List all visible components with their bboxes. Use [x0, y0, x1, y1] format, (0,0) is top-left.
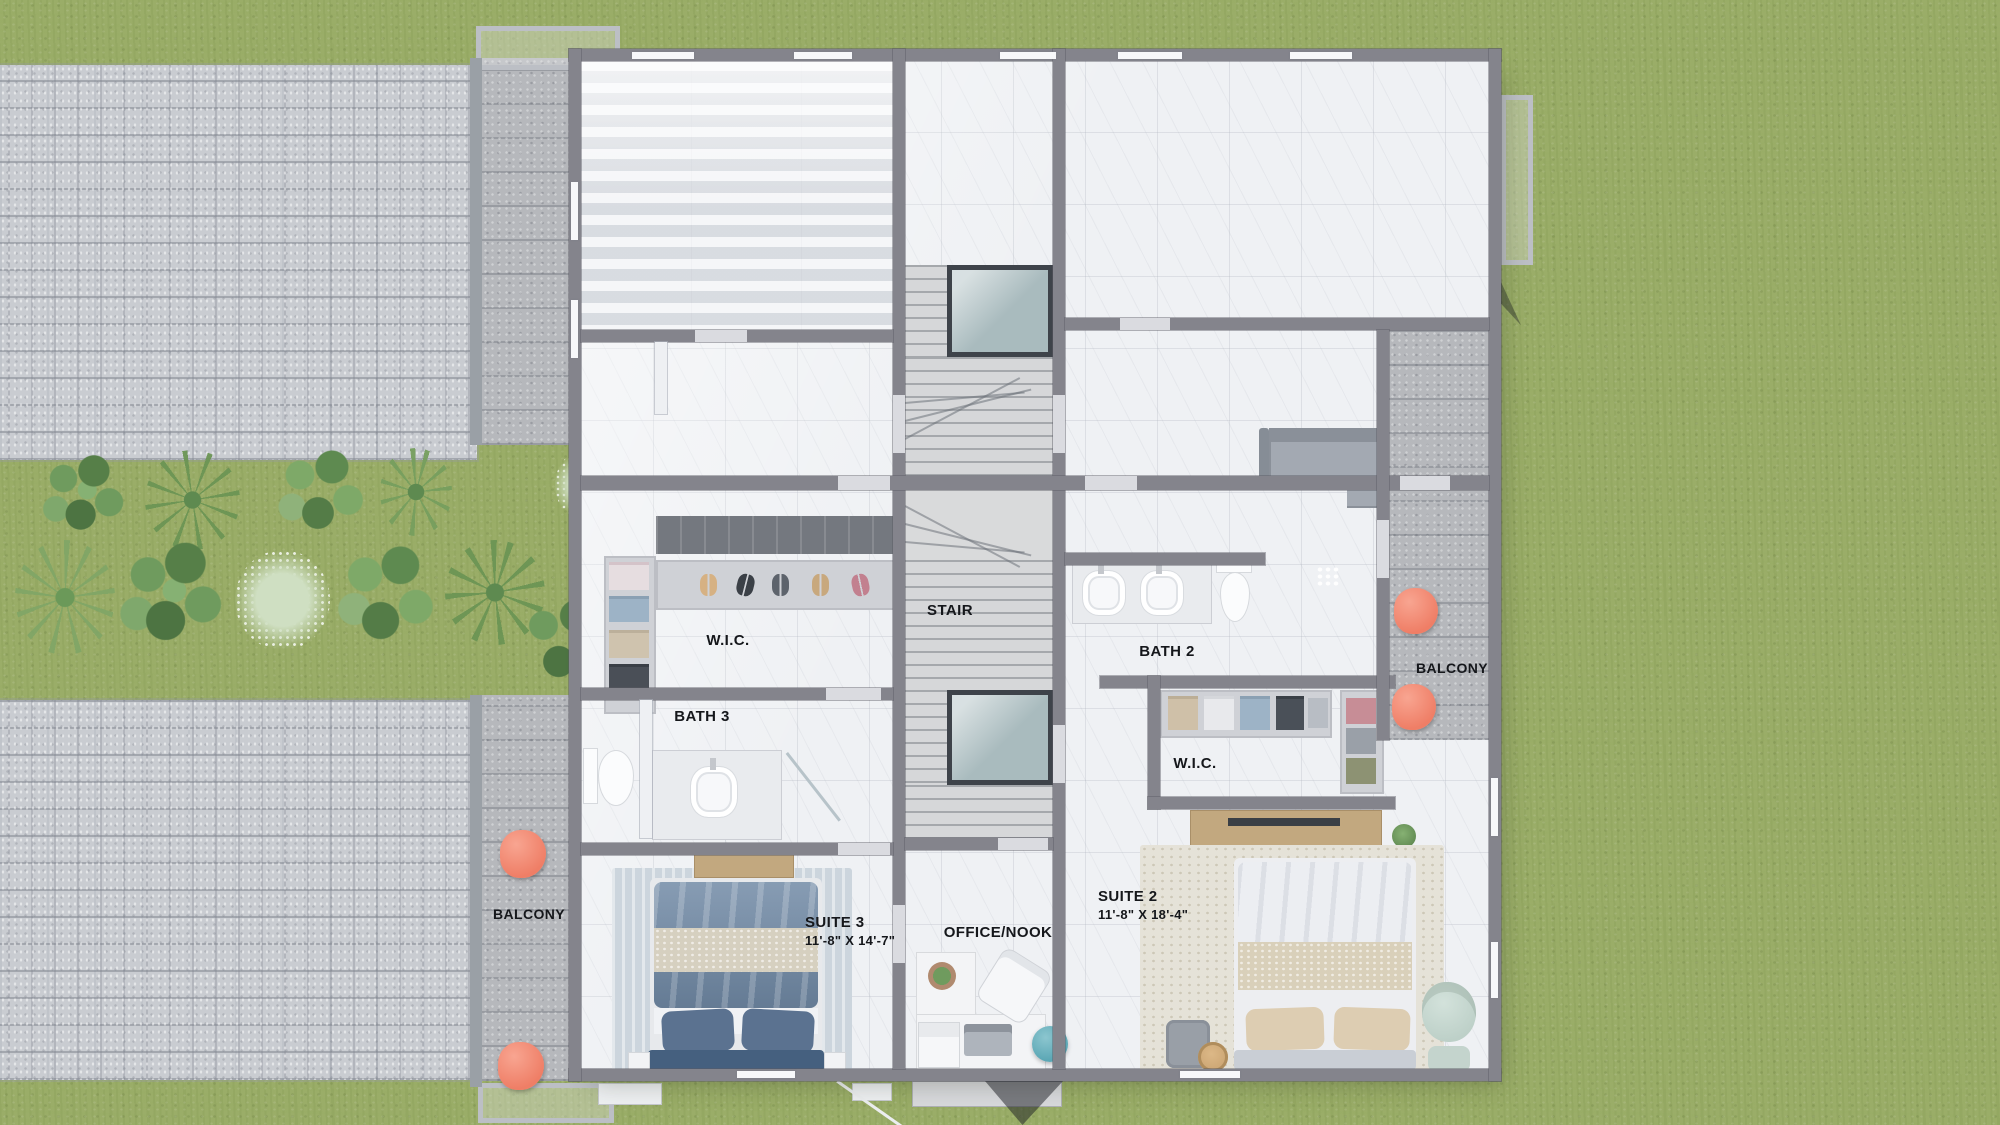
folded-clothes-stack	[1346, 698, 1376, 724]
room-label-balcony-left: BALCONY	[469, 906, 589, 924]
room-label-bath2: BATH 2	[1097, 643, 1237, 662]
door-opening	[838, 476, 890, 490]
sofa-back	[1269, 428, 1387, 442]
folded-clothes-stack	[1240, 696, 1270, 730]
shoes-pair	[700, 574, 717, 596]
room-label-bath3: BATH 3	[632, 708, 772, 727]
ac-unit	[598, 1083, 662, 1105]
shoes-pair	[812, 574, 829, 596]
wall-bath2-wic	[1100, 676, 1395, 688]
balcony-door-opening	[1377, 520, 1389, 578]
folded-clothes-stack	[1168, 696, 1198, 730]
bed-knit-throw	[1238, 942, 1412, 990]
shoes-pair	[772, 574, 789, 596]
stair-upper-landing	[947, 265, 1053, 357]
desk-drawer-unit	[918, 1022, 960, 1068]
stair-mid-flight	[905, 357, 1053, 476]
pillow	[661, 1008, 735, 1054]
window-sill	[571, 182, 578, 240]
sink	[1082, 570, 1126, 616]
door-opening	[1085, 476, 1137, 490]
roof-shadow	[1501, 282, 1521, 336]
wall-exterior-bottom	[569, 1069, 1501, 1081]
balcony-right-floor	[1389, 330, 1489, 740]
faucet	[710, 758, 716, 770]
folded-clothes-stack	[1308, 698, 1328, 728]
desk-plant	[928, 962, 956, 990]
folded-clothes-stack	[1346, 728, 1376, 754]
wicker-basket	[1198, 1042, 1228, 1072]
folded-clothes-stack	[609, 562, 649, 590]
plant-monstera	[35, 450, 130, 545]
folded-clothes-stack	[1204, 696, 1234, 730]
door-opening	[998, 838, 1048, 850]
plant-speckled-shrub	[235, 550, 330, 650]
sink	[1140, 570, 1184, 616]
hall-partition	[655, 342, 667, 414]
wall-corridor	[581, 476, 1489, 490]
window-sill	[1180, 1071, 1240, 1078]
media-console	[1190, 810, 1382, 848]
driveway-top	[0, 65, 477, 460]
pillow	[1333, 1007, 1410, 1052]
door-opening	[695, 330, 747, 342]
door-opening	[1053, 725, 1065, 783]
stair-lower-run	[905, 690, 947, 785]
room-label-wic-left: W.I.C.	[658, 632, 798, 651]
nightstand	[628, 1052, 650, 1070]
wall-wic-right-side	[1148, 676, 1160, 809]
porch-left-railing	[470, 58, 482, 445]
pillow	[741, 1008, 815, 1054]
balcony-left-railing	[470, 695, 482, 1087]
plant-monstera	[270, 445, 370, 545]
laptop	[964, 1024, 1012, 1056]
plant-palm-small	[380, 448, 452, 536]
room-label-wic-right: W.I.C.	[1125, 755, 1265, 774]
wall-stair-right	[1053, 49, 1065, 1069]
stair-upper-run	[905, 265, 947, 357]
wall-wic-right-bottom	[1148, 797, 1395, 809]
balcony-right-railing-top-frame	[1501, 95, 1533, 265]
door-opening	[838, 843, 890, 855]
bed-knit-throw	[654, 928, 818, 972]
window-sill	[1290, 52, 1352, 59]
sage-armchair	[1422, 982, 1476, 1042]
sink	[690, 766, 738, 818]
window-sill	[794, 52, 852, 59]
window-sill	[571, 300, 578, 358]
folded-clothes-stack	[609, 630, 649, 658]
plant-monstera	[330, 540, 440, 655]
room-label-balcony-right: BALCONY	[1392, 660, 1512, 678]
room-label-office-nook: OFFICE/NOOK	[918, 924, 1078, 943]
plant-palm	[15, 540, 115, 655]
plant-palm	[145, 450, 240, 550]
stair-lower-flight	[905, 560, 1053, 690]
folded-clothes-stack	[1276, 696, 1304, 730]
balcony-left-railing-bottom-frame	[478, 1083, 614, 1123]
suite2-name: SUITE 2	[1098, 888, 1268, 907]
door-opening	[1120, 318, 1170, 330]
window-sill	[1000, 52, 1056, 59]
wall-bath2-top	[1065, 553, 1265, 565]
room-label-suite2: SUITE 2 11'-8" X 18'-4"	[1098, 888, 1268, 923]
tv	[1228, 818, 1340, 826]
stair-lower-landing	[947, 690, 1053, 785]
window-sill	[737, 1071, 795, 1078]
door-opening	[1053, 395, 1065, 453]
wall-exterior-right	[1489, 49, 1501, 1081]
door-opening	[1400, 476, 1450, 490]
closet-rod-shelf	[656, 516, 896, 554]
window-sill	[632, 52, 694, 59]
room-label-stair: STAIR	[880, 602, 1020, 621]
window-sill	[1118, 52, 1182, 59]
suite2-dimensions: 11'-8" X 18'-4"	[1098, 907, 1268, 923]
headboard	[1234, 1050, 1416, 1070]
floorplan-scene: W.I.C. BATH 3 SUITE 3 11'-8" X 14'-7" OF…	[0, 0, 2000, 1125]
window-sill	[1491, 778, 1498, 836]
folded-clothes-stack	[1346, 758, 1376, 784]
folded-clothes-stack	[609, 596, 649, 622]
toilet-tank	[583, 748, 598, 804]
pillow	[1245, 1007, 1324, 1052]
flower-decor	[1316, 566, 1340, 586]
door-opening	[826, 688, 881, 700]
driveway-bottom	[0, 700, 474, 1080]
plant-monstera-large	[115, 540, 225, 655]
nightstand	[824, 1052, 846, 1070]
room-top-left-floor	[581, 61, 893, 330]
door-opening	[893, 395, 905, 453]
window-sill	[1491, 942, 1498, 998]
porch-left	[482, 58, 575, 445]
